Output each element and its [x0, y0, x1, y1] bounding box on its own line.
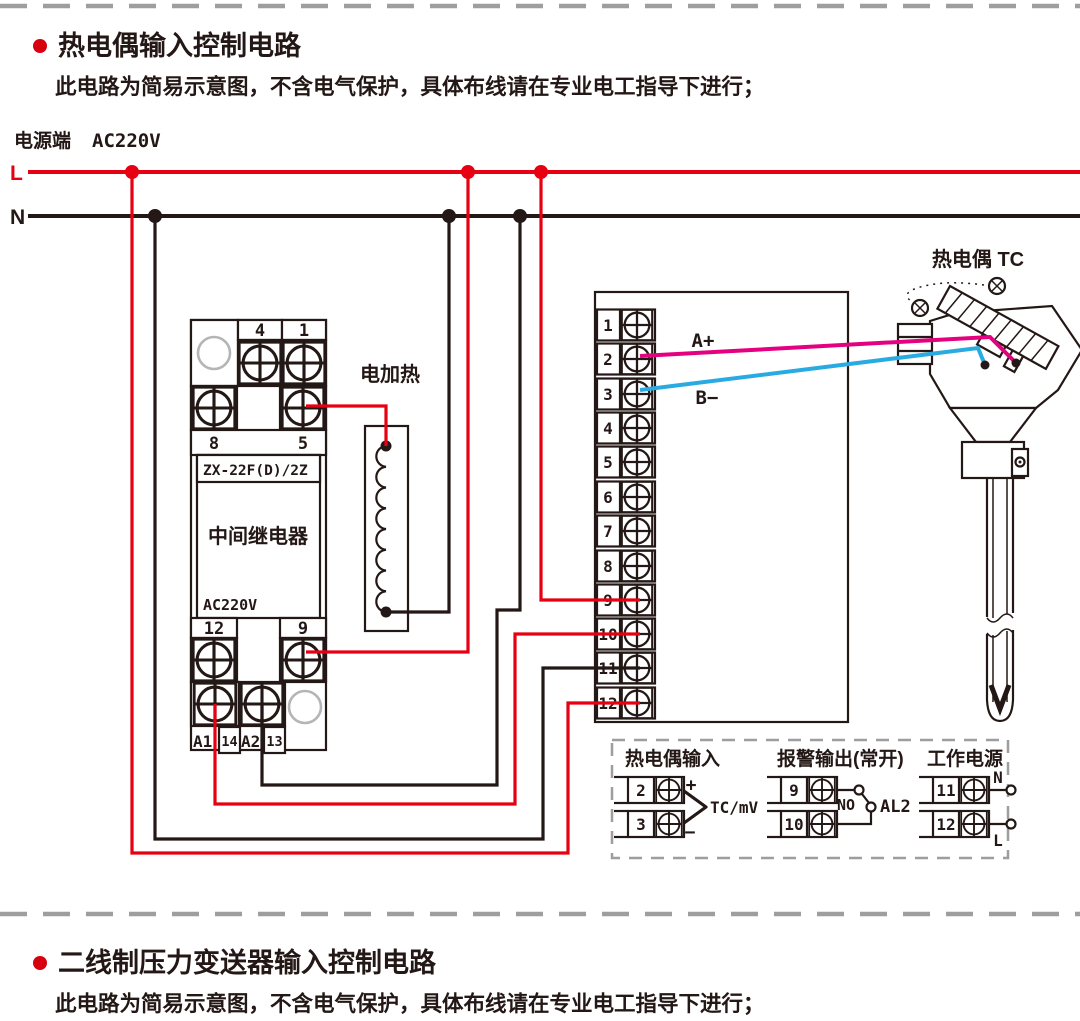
section2-subtitle: 此电路为简易示意图，不含电气保护，具体布线请在专业电工指导下进行；	[55, 991, 765, 1016]
terminal-row: 3	[597, 379, 655, 410]
relay-terminal-9-label: 9	[298, 619, 308, 639]
relay-terminal-a2-label: A2	[241, 732, 260, 751]
legend-working-power: 工作电源 11 12 N L	[919, 747, 1016, 850]
block-terminal-8-label: 8	[603, 557, 613, 576]
cap-screw-icon	[912, 300, 928, 316]
legend-tc-signal-label: TC/mV	[710, 798, 759, 817]
relay-screw-1-icon	[283, 342, 325, 384]
terminal-row: 1	[597, 310, 655, 341]
thermocouple-probe: 热电偶 TC	[898, 247, 1080, 721]
neutral-to-heater-wire	[390, 216, 449, 612]
block-terminal-3-label: 3	[603, 385, 613, 404]
legend-minus-label: −	[685, 822, 696, 843]
terminal-row: 2	[597, 344, 655, 375]
thermocouple-sheath	[987, 478, 1013, 721]
legend-terminal-3-label: 3	[636, 815, 646, 834]
bullet-icon	[33, 956, 47, 970]
power-voltage-label: AC220V	[92, 130, 161, 152]
relay-voltage-label: AC220V	[203, 596, 257, 614]
terminal-row: 6	[597, 482, 655, 513]
bullet-icon	[33, 39, 47, 53]
relay-screw-5-icon	[282, 387, 324, 429]
block-terminal-2-label: 2	[603, 350, 613, 369]
heater-label: 电加热	[360, 363, 420, 386]
block-terminal-5-label: 5	[603, 453, 613, 472]
relay-terminal-12-label: 12	[204, 619, 224, 639]
legend-al2-label: AL2	[880, 797, 911, 817]
terminal-legend: 热电偶输入 2 3 + − TC/mV 报警输出(常开) 9 10	[612, 740, 1016, 858]
relay-terminal-4-label: 4	[255, 321, 265, 341]
legend-alarm-output: 报警输出(常开) 9 10 NO AL2	[767, 747, 911, 837]
probe-tip-arrow-icon	[991, 685, 1009, 709]
section2-title: 二线制压力变送器输入控制电路	[58, 947, 437, 978]
cap-screw-icon	[989, 278, 1005, 294]
legend-terminal-12-label: 12	[936, 815, 955, 834]
thermocouple-neck	[950, 408, 1036, 442]
legend-tc-input-title: 热电偶输入	[625, 747, 720, 770]
relay-terminal-1-label: 1	[299, 321, 309, 341]
wire-b-minus-label: B−	[696, 387, 719, 409]
relay-name-label: 中间继电器	[208, 524, 309, 548]
terminal-row: 7	[597, 516, 655, 547]
legend-supply-title: 工作电源	[927, 747, 1003, 770]
legend-alarm-title: 报警输出(常开)	[777, 747, 904, 770]
legend-no-label: NO	[837, 796, 855, 814]
relay-terminal-8-label: 8	[209, 434, 219, 454]
relay-screw-8-icon	[193, 387, 235, 429]
legend-l-label: L	[993, 831, 1003, 850]
legend-terminal-2-label: 2	[636, 781, 646, 800]
relay-terminal-a1-label: A1	[193, 732, 212, 751]
legend-terminal-9-label: 9	[789, 781, 799, 800]
wiring-diagram-page: 热电偶输入控制电路 此电路为简易示意图，不含电气保护，具体布线请在专业电工指导下…	[0, 0, 1080, 1021]
legend-n-label: N	[993, 768, 1003, 787]
live-line-label: L	[10, 162, 23, 185]
legend-terminal-11-label: 11	[936, 781, 955, 800]
block-terminal-4-label: 4	[603, 419, 613, 438]
block-terminal-1-label: 1	[603, 316, 613, 335]
circuit-diagram: 热电偶输入控制电路 此电路为简易示意图，不含电气保护，具体布线请在专业电工指导下…	[0, 0, 1080, 1021]
relay-terminal-14-label: 14	[221, 734, 237, 750]
controller-terminal-block: 1 2 3 4 5 6 7	[595, 292, 848, 722]
relay-screw-12-icon	[193, 639, 235, 681]
neutral-line-label: N	[10, 206, 25, 229]
thermocouple-label: 热电偶 TC	[932, 247, 1024, 271]
terminal-row: 8	[597, 551, 655, 582]
relay-screw-9-icon	[282, 639, 324, 681]
relay-model-label: ZX-22F(D)/2Z	[203, 463, 308, 479]
relay-terminal-5-label: 5	[298, 434, 308, 454]
relay-terminal-13-label: 13	[266, 734, 282, 750]
block-terminal-6-label: 6	[603, 488, 613, 507]
intermediate-relay: 4 1 8 5 ZX-22F(D)/2Z 中间继电器 AC220V 12 9 A…	[191, 320, 326, 753]
section1-title: 热电偶输入控制电路	[58, 30, 302, 61]
wire-a-plus-label: A+	[692, 330, 715, 352]
legend-terminal-10-label: 10	[784, 815, 803, 834]
block-terminal-7-label: 7	[603, 522, 613, 541]
section1-subtitle: 此电路为简易示意图，不含电气保护，具体布线请在专业电工指导下进行；	[55, 74, 765, 99]
legend-tc-input: 热电偶输入 2 3 + − TC/mV	[614, 747, 759, 843]
electric-heater: 电加热	[360, 363, 420, 631]
terminal-row: 5	[597, 447, 655, 478]
relay-screw-4-icon	[239, 342, 281, 384]
terminal-row: 4	[597, 413, 655, 444]
power-terminal-label: 电源端	[14, 129, 71, 152]
heater-coil-icon	[376, 446, 386, 612]
